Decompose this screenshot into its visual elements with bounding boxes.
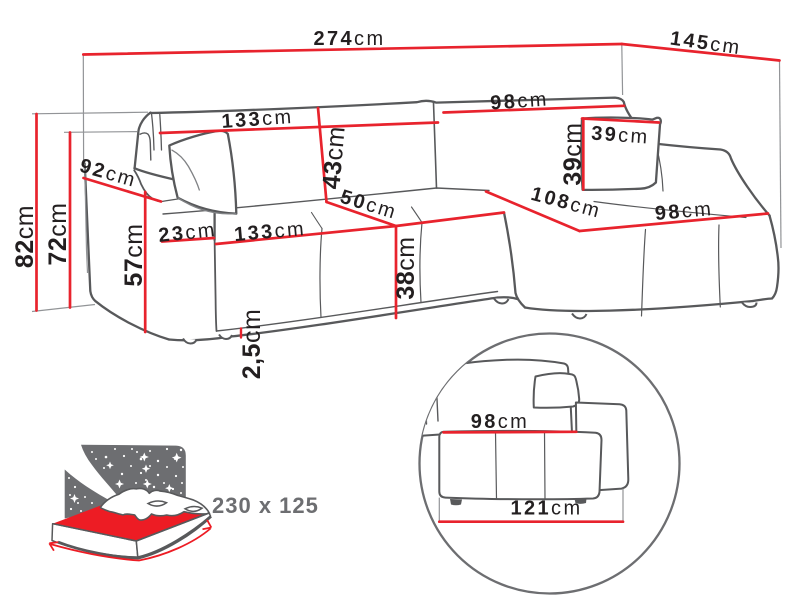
svg-text:39cm: 39cm [590, 122, 650, 148]
svg-text:39cm: 39cm [559, 122, 587, 185]
svg-text:43cm: 43cm [317, 125, 350, 190]
svg-text:274cm: 274cm [313, 28, 385, 50]
svg-text:98cm: 98cm [490, 88, 550, 114]
svg-text:230 x 125: 230 x 125 [212, 493, 319, 518]
svg-text:2,5cm: 2,5cm [238, 309, 266, 380]
svg-text:82cm: 82cm [11, 205, 39, 268]
svg-text:98cm: 98cm [471, 411, 530, 433]
svg-text:72cm: 72cm [44, 202, 72, 265]
svg-text:57cm: 57cm [120, 223, 148, 286]
svg-text:38cm: 38cm [392, 236, 420, 299]
svg-text:121cm: 121cm [510, 498, 582, 520]
